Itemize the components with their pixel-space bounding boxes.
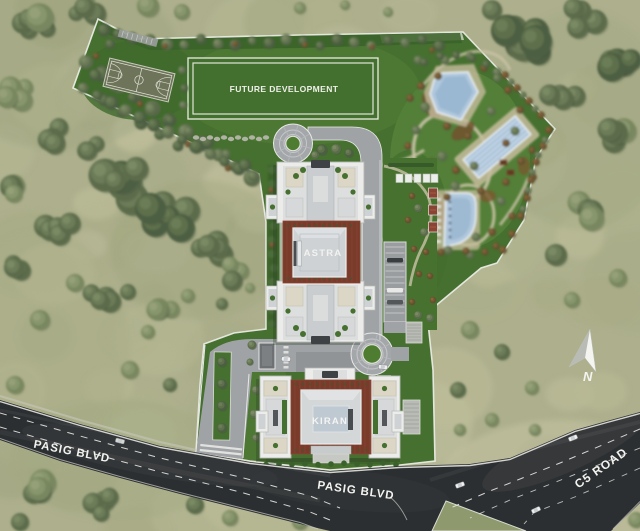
svg-text:FUTURE DEVELOPMENT: FUTURE DEVELOPMENT [230, 84, 339, 94]
svg-text:ASTRA: ASTRA [304, 248, 343, 259]
svg-text:N: N [583, 369, 593, 384]
svg-text:KIRAN: KIRAN [312, 416, 348, 427]
